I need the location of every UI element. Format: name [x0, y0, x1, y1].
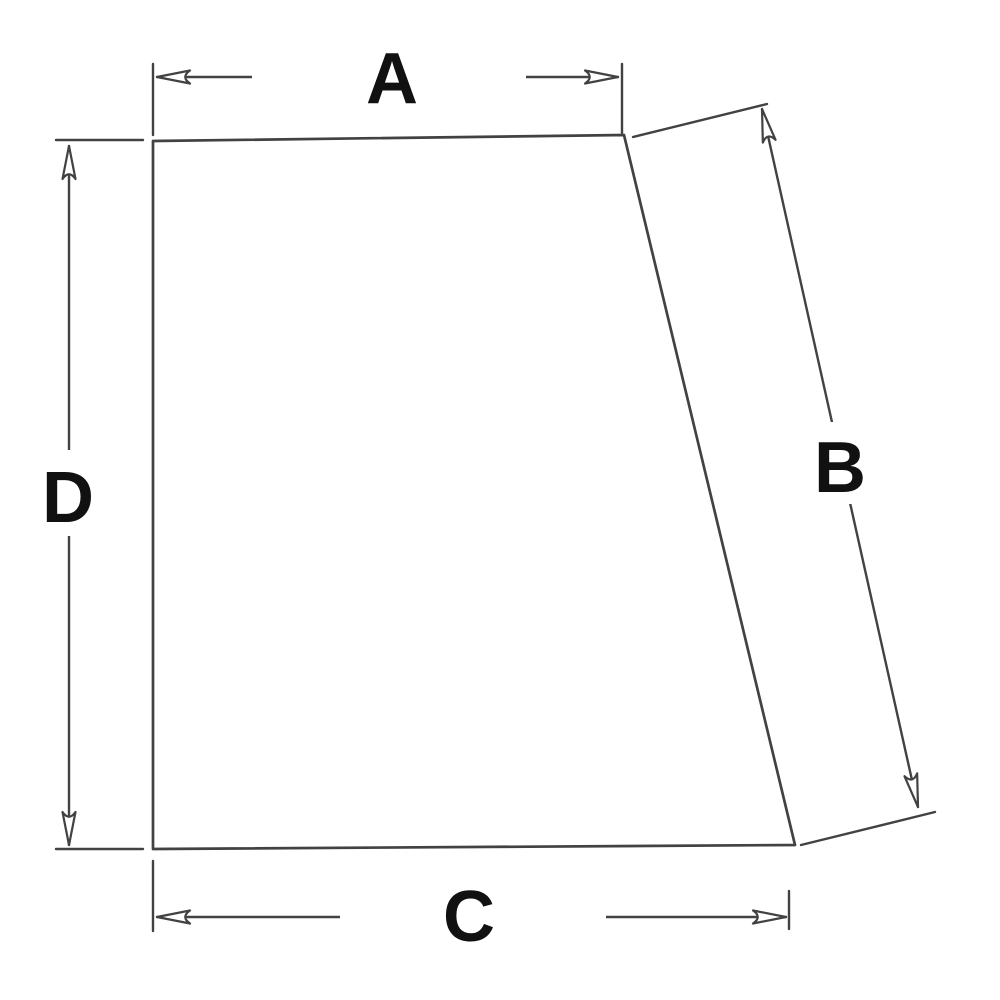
dimension-label-c: C [443, 877, 495, 957]
panel-outline [153, 135, 795, 849]
extension-line-b-top [633, 104, 767, 137]
extension-line-b-bottom [801, 812, 935, 845]
diagram-canvas: A B C D [0, 0, 1000, 1000]
dimension-label-d: D [42, 458, 94, 538]
dimension-label-a: A [366, 39, 418, 119]
dimension-label-b: B [814, 428, 866, 508]
dimension-diagram: A B C D [0, 0, 1000, 1000]
